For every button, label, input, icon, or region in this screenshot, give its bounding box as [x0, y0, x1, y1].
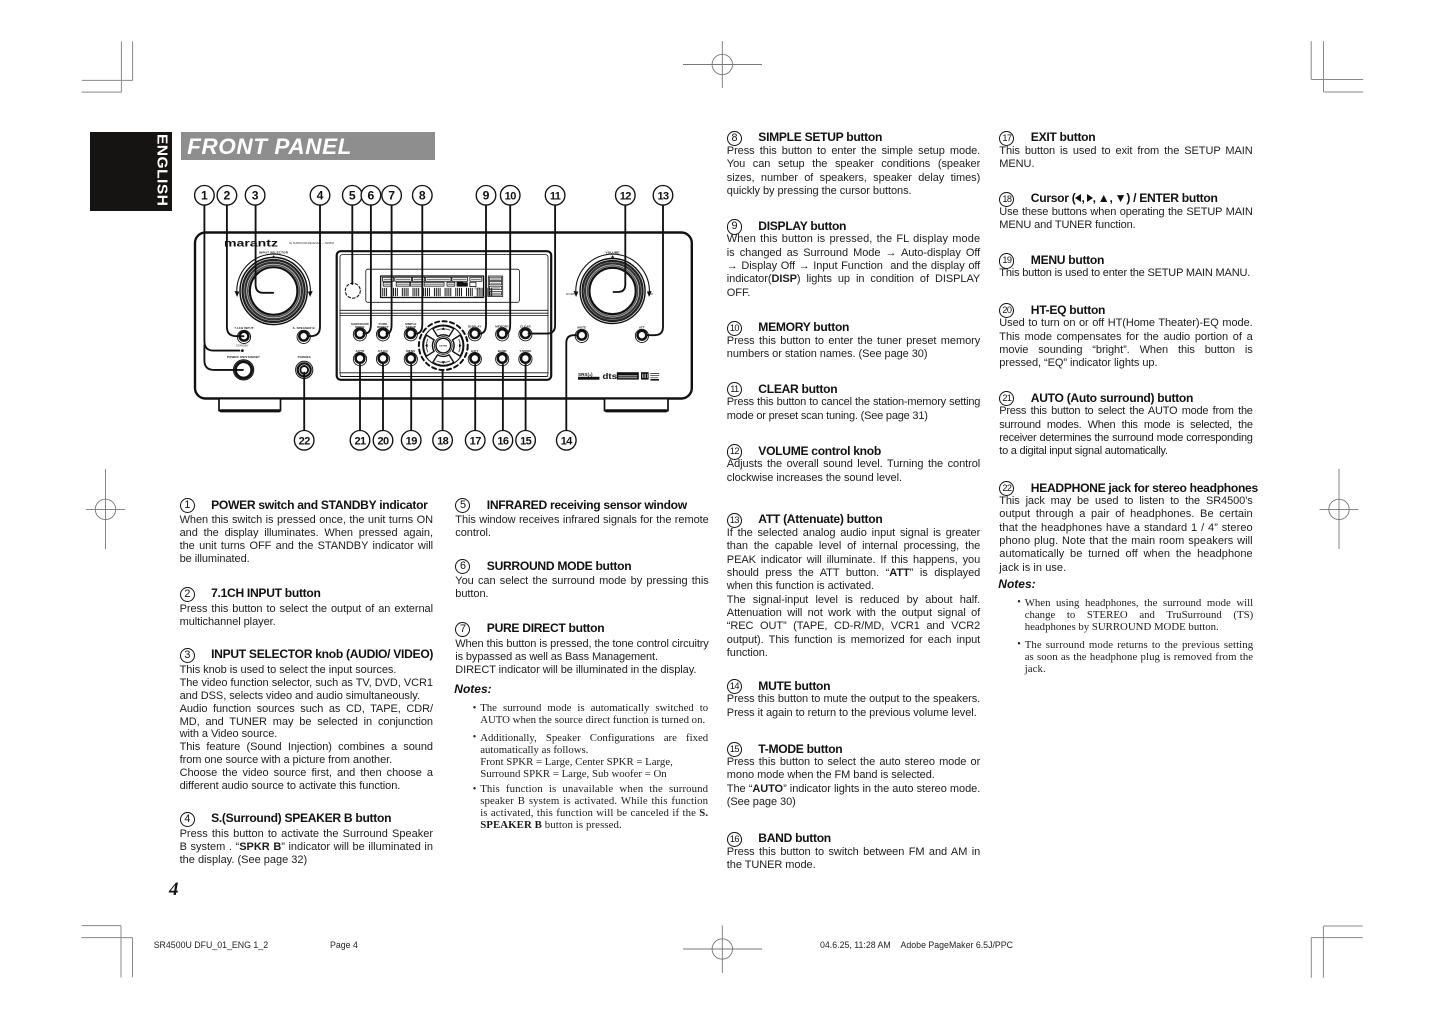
svg-text:DOWN: DOWN: [566, 292, 575, 296]
svg-text:PHONES: PHONES: [298, 355, 311, 359]
svg-text:MUTE: MUTE: [577, 325, 586, 329]
svg-text:15: 15: [520, 436, 532, 448]
svg-text:16: 16: [497, 436, 509, 448]
svg-text:1: 1: [201, 189, 208, 203]
svg-text:11: 11: [550, 191, 561, 203]
svg-text:21: 21: [354, 436, 366, 448]
svg-text:20: 20: [377, 436, 389, 448]
svg-text:9: 9: [483, 189, 490, 203]
svg-text:5: 5: [349, 189, 356, 203]
svg-text:POWER ON/STANDBY: POWER ON/STANDBY: [227, 355, 260, 359]
svg-text:8: 8: [419, 189, 426, 203]
svg-text:2: 2: [224, 189, 231, 203]
svg-text:3: 3: [252, 189, 259, 203]
svg-text:UP: UP: [649, 292, 653, 296]
svg-text:STANDBY: STANDBY: [236, 345, 249, 348]
svg-text:22: 22: [299, 436, 311, 448]
svg-text:6: 6: [368, 189, 375, 203]
svg-text:marantz: marantz: [224, 238, 278, 250]
svg-text:7.1CH INPUT: 7.1CH INPUT: [234, 326, 253, 330]
svg-text:ENTER: ENTER: [439, 346, 447, 348]
svg-text:17: 17: [470, 436, 482, 448]
svg-text:19: 19: [406, 436, 418, 448]
svg-text:10: 10: [505, 191, 517, 203]
svg-text:7: 7: [388, 189, 395, 203]
svg-text:14: 14: [561, 436, 574, 448]
svg-text:dts: dts: [603, 372, 618, 381]
svg-text:ATT: ATT: [639, 325, 645, 329]
svg-text:4: 4: [317, 189, 324, 203]
svg-text:18: 18: [437, 436, 449, 448]
svg-text:SRS(●): SRS(●): [578, 372, 593, 377]
svg-text:S. SPEAKER B: S. SPEAKER B: [293, 326, 315, 330]
svg-text:12: 12: [620, 191, 632, 203]
svg-text:13: 13: [657, 191, 669, 203]
svg-text:AV SURROUND RECEIVER — SR4500: AV SURROUND RECEIVER — SR4500: [289, 241, 334, 245]
